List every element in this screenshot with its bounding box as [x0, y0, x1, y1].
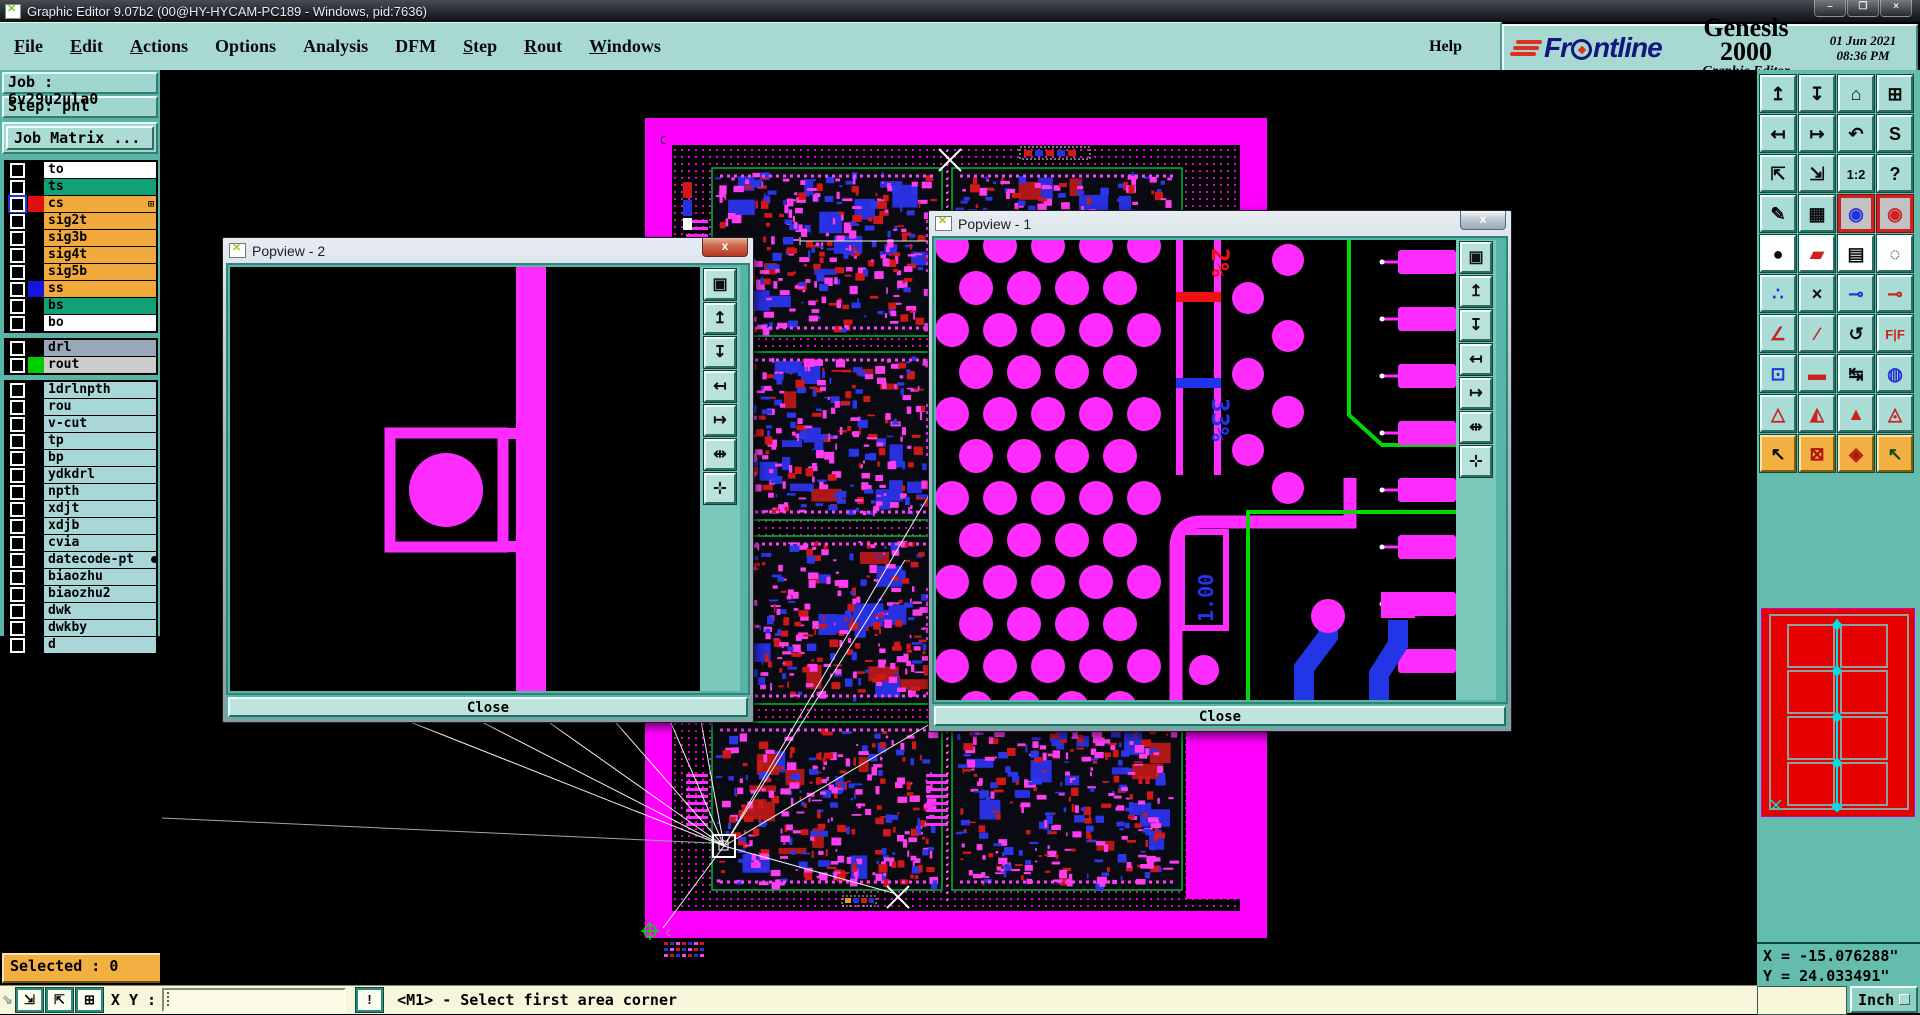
layer-color-swatch[interactable]: [28, 247, 44, 263]
layer-row-drl[interactable]: drl: [6, 340, 156, 356]
layer-checkbox-ss[interactable]: [10, 282, 25, 297]
layer-checkbox-sig5b[interactable]: [10, 265, 25, 280]
layer-checkbox-dwk[interactable]: [10, 604, 25, 619]
layer-label[interactable]: bo: [44, 315, 156, 331]
zoom-out-button[interactable]: ⇱: [1760, 155, 1796, 192]
xy-input[interactable]: [162, 988, 346, 1012]
layer-color-swatch[interactable]: [28, 467, 44, 483]
job-label: Job : 6v29u2ula0: [2, 72, 158, 94]
layer-row-biaozhu[interactable]: biaozhu: [6, 569, 156, 585]
layer-checkbox-rou[interactable]: [10, 400, 25, 415]
layer-row-sig4t[interactable]: sig4t: [6, 247, 156, 263]
alert-button[interactable]: !: [356, 988, 383, 1012]
layer-checkbox-xdjt[interactable]: [10, 502, 25, 517]
layer-row-ts[interactable]: ts: [6, 179, 156, 195]
layer-checkbox-bs[interactable]: [10, 299, 25, 314]
copy-filled-button[interactable]: ⊸: [1877, 275, 1913, 312]
layer-checkbox-ts[interactable]: [10, 180, 25, 195]
setup-tools-button[interactable]: ✎: [1760, 195, 1796, 232]
layer-color-swatch[interactable]: [28, 179, 44, 195]
coord-y: Y = 24.033491": [1763, 966, 1920, 986]
popview2-canvas: [230, 267, 700, 691]
layer-checkbox-sig4t[interactable]: [10, 248, 25, 263]
layer-color-swatch[interactable]: [28, 382, 44, 398]
display-profile-2-button[interactable]: ◉: [1877, 195, 1913, 232]
cursor-coordinates: X = -15.076288" Y = 24.033491": [1757, 942, 1920, 990]
pan-right-button[interactable]: ↦: [1799, 115, 1835, 152]
layer-checkbox-xdjb[interactable]: [10, 519, 25, 534]
popview2-close-x-button[interactable]: x: [702, 238, 748, 257]
logo-stripes-icon: [1510, 40, 1542, 56]
zoom-fit-icon[interactable]: ⇹: [704, 439, 736, 470]
popout-window-icon[interactable]: ▣: [1460, 242, 1492, 273]
layer-checkbox-dwkby[interactable]: [10, 621, 25, 636]
layer-label[interactable]: sig5b: [44, 264, 156, 280]
menu-items: FileEditActionsOptionsAnalysisDFMStepRou…: [14, 36, 661, 57]
pan-down-icon[interactable]: ↧: [704, 337, 736, 368]
layer-row-ydkdrl[interactable]: ydkdrl: [6, 467, 156, 483]
layer-color-swatch[interactable]: [28, 637, 44, 653]
menu-item-file[interactable]: File: [14, 36, 43, 57]
text-caret: [167, 992, 169, 1006]
layer-checkbox-biaozhu[interactable]: [10, 570, 25, 585]
brand-name: Frntline: [1544, 32, 1662, 64]
layer-color-swatch[interactable]: [28, 196, 44, 212]
popview2-window: Popview - 2 x ▣↥↧↤↦⇹⊹ Close: [222, 237, 754, 723]
layer-color-swatch[interactable]: [28, 620, 44, 636]
popview2-title: Popview - 2: [252, 243, 325, 259]
status-bar: ⇘ ⇲⇱⊞ X Y : ! <M1> - Select first area c…: [0, 985, 1757, 1014]
net-points-button[interactable]: ∴: [1760, 275, 1796, 312]
layer-list: totscs⊞sig2tsig3bsig4tsig5bssbsbodrlrout…: [4, 160, 158, 655]
cursor-net-button[interactable]: ↖: [1877, 435, 1913, 472]
pan-left-button[interactable]: ↤: [1760, 115, 1796, 152]
layer-label[interactable]: xdjt: [44, 501, 156, 517]
layer-checkbox-bo[interactable]: [10, 316, 25, 331]
truncation-dot: [151, 556, 156, 563]
layer-row-d[interactable]: d: [6, 637, 156, 653]
layer-color-swatch[interactable]: [28, 603, 44, 619]
layer-color-swatch[interactable]: [28, 315, 44, 331]
layer-label[interactable]: bs: [44, 298, 156, 314]
layer-label[interactable]: sig3b: [44, 230, 156, 246]
menu-item-edit[interactable]: Edit: [70, 36, 103, 57]
layer-color-swatch[interactable]: [28, 298, 44, 314]
layer-color-swatch[interactable]: [28, 484, 44, 500]
layer-color-swatch[interactable]: [28, 552, 44, 568]
zoom-sequence-button[interactable]: S: [1877, 115, 1913, 152]
layer-color-swatch[interactable]: [28, 357, 44, 373]
datetime: 01 Jun 2021 08:36 PM: [1810, 33, 1916, 63]
menu-item-dfm[interactable]: DFM: [395, 36, 436, 57]
menu-item-rout[interactable]: Rout: [524, 36, 562, 57]
menu-bar: FileEditActionsOptionsAnalysisDFMStepRou…: [0, 22, 1502, 71]
layer-row-rout[interactable]: rout: [6, 357, 156, 373]
layer-label[interactable]: sig4t: [44, 247, 156, 263]
zoom-center-icon[interactable]: ⊹: [1460, 446, 1492, 477]
xy-label: X Y :: [111, 991, 156, 1009]
pan-left-icon[interactable]: ↤: [704, 371, 736, 402]
layer-row-1drlnpth[interactable]: 1drlnpth: [6, 382, 156, 398]
popview2-toolbar: ▣↥↧↤↦⇹⊹: [700, 267, 740, 691]
coord-x: X = -15.076288": [1763, 946, 1920, 966]
brand-panel: Frntline Genesis 2000 Graphic Editor 01 …: [1502, 24, 1918, 72]
layer-label[interactable]: dwk: [44, 603, 156, 619]
layer-checkbox-drl[interactable]: [10, 341, 25, 356]
layer-label[interactable]: ts: [44, 179, 156, 195]
layer-checkbox-bp[interactable]: [10, 451, 25, 466]
layer-color-swatch[interactable]: [28, 340, 44, 356]
layer-label[interactable]: 1drlnpth: [44, 382, 156, 398]
pan-left-icon[interactable]: ↤: [1460, 344, 1492, 375]
layer-row-cvia[interactable]: cvia: [6, 535, 156, 551]
layer-row-npth[interactable]: npth: [6, 484, 156, 500]
pan-up-icon[interactable]: ↥: [1460, 276, 1492, 307]
toolbar-grid: ↥↧⌂⊞↤↦↶S⇱⇲1:2?✎▦◉◉●▰▤◌∴×⊸⊸∠∕↺F|F⊡▬↹◍△◭▲◬…: [1760, 75, 1916, 475]
layer-row-dwkby[interactable]: dwkby: [6, 620, 156, 636]
layer-checkbox-to[interactable]: [10, 163, 25, 178]
layer-label[interactable]: xdjb: [44, 518, 156, 534]
layer-checkbox-1drlnpth[interactable]: [10, 383, 25, 398]
pan-down-icon[interactable]: ↧: [1460, 310, 1492, 341]
units-dropdown[interactable]: Inch: [1850, 986, 1918, 1013]
layer-row-xdjb[interactable]: xdjb: [6, 518, 156, 534]
layer-checkbox-ydkdrl[interactable]: [10, 468, 25, 483]
layer-color-swatch[interactable]: [28, 569, 44, 585]
triangle-double-button[interactable]: ◭: [1799, 395, 1835, 432]
layer-label[interactable]: d: [44, 637, 156, 653]
layer-color-swatch[interactable]: [28, 433, 44, 449]
layer-color-swatch[interactable]: [28, 213, 44, 229]
menu-item-analysis[interactable]: Analysis: [303, 36, 368, 57]
datecode-legend: [664, 942, 704, 957]
restore-button[interactable]: ❐: [1847, 0, 1879, 17]
layer-row-dwk[interactable]: dwk: [6, 603, 156, 619]
layer-grid-icon: ⊞: [148, 197, 154, 212]
app-icon: [5, 4, 21, 19]
layer-checkbox-biaozhu2[interactable]: [10, 587, 25, 602]
date-text: 01 Jun 2021: [1810, 33, 1916, 48]
dropdown-indicator-icon: [1899, 994, 1910, 1005]
layer-label[interactable]: ydkdrl: [44, 467, 156, 483]
layer-row-bp[interactable]: bp: [6, 450, 156, 466]
layer-color-swatch[interactable]: [28, 162, 44, 178]
window-title: Graphic Editor 9.07b2 (00@HY-HYCAM-PC189…: [27, 4, 427, 19]
menu-help[interactable]: Help: [1429, 38, 1462, 56]
layer-label[interactable]: rou: [44, 399, 156, 415]
layer-checkbox-npth[interactable]: [10, 485, 25, 500]
layer-color-swatch[interactable]: [28, 535, 44, 551]
mirror-button[interactable]: F|F: [1877, 315, 1913, 352]
cursor-polygon-button[interactable]: ◈: [1838, 435, 1874, 472]
percent-label-top: 2%: [1206, 248, 1234, 277]
layer-label[interactable]: dwkby: [44, 620, 156, 636]
merge-pads-button[interactable]: ◍: [1877, 355, 1913, 392]
leader-line-grey: [162, 818, 712, 843]
copy-pad-button[interactable]: ⊡: [1760, 355, 1796, 392]
menu-item-step[interactable]: Step: [463, 36, 497, 57]
pan-up-window-button[interactable]: ↥: [1760, 75, 1796, 112]
pan-up-icon[interactable]: ↥: [704, 303, 736, 334]
popview-window-icon: [229, 243, 246, 258]
popview1-toolbar: ▣↥↧↤↦⇹⊹: [1456, 240, 1496, 700]
layer-row-biaozhu2[interactable]: biaozhu2: [6, 586, 156, 602]
product-title: Genesis 2000: [1682, 16, 1810, 64]
layer-label[interactable]: bp: [44, 450, 156, 466]
zoom-fit-icon[interactable]: ⇹: [1460, 412, 1492, 443]
stretch-line-button[interactable]: ▬: [1799, 355, 1835, 392]
layer-label[interactable]: ss: [44, 281, 156, 297]
measure-ruler-button[interactable]: ▤: [1838, 235, 1874, 272]
layer-color-swatch[interactable]: [28, 230, 44, 246]
triangle-outline-button[interactable]: △: [1760, 395, 1796, 432]
cursor-area-button[interactable]: ⊠: [1799, 435, 1835, 472]
layer-row-sig3b[interactable]: sig3b: [6, 230, 156, 246]
layer-row-tp[interactable]: tp: [6, 433, 156, 449]
layer-color-swatch[interactable]: [28, 264, 44, 280]
popview1-window: Popview - 1 x 2% 33% 1.00: [928, 210, 1512, 732]
layer-label[interactable]: cvia: [44, 535, 156, 551]
zoom-window-xy-button[interactable]: ⊞: [1877, 75, 1913, 112]
measure-slope-button[interactable]: ∕: [1799, 315, 1835, 352]
status-message: <M1> - Select first area corner: [397, 991, 677, 1009]
zoom-previous-button[interactable]: ↶: [1838, 115, 1874, 152]
layer-color-swatch[interactable]: [28, 501, 44, 517]
layer-checkbox-cvia[interactable]: [10, 536, 25, 551]
zoom-1-2-button[interactable]: 1:2: [1838, 155, 1874, 192]
menu-item-actions[interactable]: Actions: [130, 36, 188, 57]
layer-row-v-cut[interactable]: v-cut: [6, 416, 156, 432]
layer-label[interactable]: to: [44, 162, 156, 178]
menu-item-windows[interactable]: Windows: [589, 36, 661, 57]
select-pad-button[interactable]: ◌: [1877, 235, 1913, 272]
popview1-canvas: 2% 33% 1.00: [936, 240, 1456, 700]
popview1-close-button[interactable]: Close: [934, 706, 1506, 726]
layer-row-xdjt[interactable]: xdjt: [6, 501, 156, 517]
job-matrix-button[interactable]: Job Matrix ...: [6, 126, 154, 150]
layer-label[interactable]: sig2t: [44, 213, 156, 229]
delete-button[interactable]: ×: [1799, 275, 1835, 312]
close-button[interactable]: ×: [1880, 0, 1912, 17]
layer-checkbox-v-cut[interactable]: [10, 417, 25, 432]
popview-window-icon: [935, 216, 952, 231]
note-box: [1757, 986, 1847, 1015]
resize-grip-icon: ⇘: [2, 992, 13, 1008]
copy-open-button[interactable]: ⊸: [1838, 275, 1874, 312]
layer-color-swatch[interactable]: [28, 416, 44, 432]
layer-color-swatch[interactable]: [28, 518, 44, 534]
pan-right-icon[interactable]: ↦: [704, 405, 736, 436]
minimize-button[interactable]: –: [1814, 0, 1846, 17]
measure-diagonal-icon[interactable]: ⇱: [46, 988, 73, 1012]
layer-label[interactable]: rout: [44, 357, 156, 373]
window-controls: –❐×: [1813, 0, 1912, 17]
layer-row-ss[interactable]: ss: [6, 281, 156, 297]
layer-checkbox-datecode-pt[interactable]: [10, 553, 25, 568]
grid-toggle-button[interactable]: ▦: [1799, 195, 1835, 232]
panel-overview-thumbnail[interactable]: [1761, 608, 1915, 817]
menu-item-options[interactable]: Options: [215, 36, 276, 57]
zoom-home-button[interactable]: ⌂: [1838, 75, 1874, 112]
tile-windows-icon[interactable]: ⊞: [76, 988, 103, 1012]
layer-row-sig5b[interactable]: sig5b: [6, 264, 156, 280]
pan-right-icon[interactable]: ↦: [1460, 378, 1492, 409]
dimension-button[interactable]: ↹: [1838, 355, 1874, 392]
edit-shapes-button[interactable]: ▰: [1799, 235, 1835, 272]
layer-row-to[interactable]: to: [6, 162, 156, 178]
triangle-wide-button[interactable]: ◬: [1877, 395, 1913, 432]
layer-color-swatch[interactable]: [28, 281, 44, 297]
panel-corner-letter-top: C: [660, 134, 667, 147]
sidebar: Job : 6v29u2ula0 Step: pnl Job Matrix ..…: [0, 70, 160, 636]
zoom-in-button[interactable]: ⇲: [1799, 155, 1835, 192]
layer-color-swatch[interactable]: [28, 450, 44, 466]
triangle-filled-button[interactable]: ▲: [1838, 395, 1874, 432]
layer-row-rou[interactable]: rou: [6, 399, 156, 415]
layer-label[interactable]: biaozhu: [44, 569, 156, 585]
popview2-title-bar[interactable]: Popview - 2 x: [226, 238, 750, 263]
layer-label[interactable]: npth: [44, 484, 156, 500]
layer-checkbox-d[interactable]: [10, 638, 25, 653]
time-text: 08:36 PM: [1810, 48, 1916, 63]
layer-label[interactable]: tp: [44, 433, 156, 449]
layer-row-bo[interactable]: bo: [6, 315, 156, 331]
layer-color-swatch[interactable]: [28, 586, 44, 602]
layer-row-cs[interactable]: cs⊞: [6, 196, 156, 212]
step-label: Step: pnl: [2, 96, 158, 118]
right-toolbar-panel: ↥↧⌂⊞↤↦↶S⇱⇲1:2?✎▦◉◉●▰▤◌∴×⊸⊸∠∕↺F|F⊡▬↹◍△◭▲◬…: [1757, 70, 1920, 1013]
layer-color-swatch[interactable]: [28, 399, 44, 415]
display-profile-1-button[interactable]: ◉: [1838, 195, 1874, 232]
popout-window-icon[interactable]: ▣: [704, 269, 736, 300]
layer-label[interactable]: datecode-pt: [44, 552, 156, 568]
value-label: 1.00: [1194, 574, 1218, 622]
panel-corner-letter-bottom: C: [666, 929, 671, 939]
layer-label[interactable]: biaozhu2: [44, 586, 156, 602]
popview2-close-button[interactable]: Close: [228, 697, 748, 717]
layer-label[interactable]: drl: [44, 340, 156, 356]
percent-label-mid: 33%: [1206, 398, 1234, 442]
layer-checkbox-sig2t[interactable]: [10, 214, 25, 229]
zoom-center-icon[interactable]: ⊹: [704, 473, 736, 504]
layer-label[interactable]: v-cut: [44, 416, 156, 432]
frontline-logo: Frntline: [1510, 32, 1682, 64]
layer-checkbox-rout[interactable]: [10, 358, 25, 373]
layer-row-datecode-pt[interactable]: datecode-pt: [6, 552, 156, 568]
select-feature-button[interactable]: ●: [1760, 235, 1796, 272]
layer-label[interactable]: cs⊞: [44, 196, 156, 212]
layer-checkbox-sig3b[interactable]: [10, 231, 25, 246]
layer-row-sig2t[interactable]: sig2t: [6, 213, 156, 229]
rotate-button[interactable]: ↺: [1838, 315, 1874, 352]
cursor-select-button[interactable]: ↖: [1760, 435, 1796, 472]
layer-row-bs[interactable]: bs: [6, 298, 156, 314]
layer-checkbox-cs[interactable]: [10, 197, 25, 212]
window-title-bar: Graphic Editor 9.07b2 (00@HY-HYCAM-PC189…: [0, 0, 1920, 22]
popview1-close-x-button[interactable]: x: [1460, 211, 1506, 230]
resize-corner-icon[interactable]: ⇲: [16, 988, 43, 1012]
layer-checkbox-tp[interactable]: [10, 434, 25, 449]
popview1-title: Popview - 1: [958, 216, 1031, 232]
measure-angle-button[interactable]: ∠: [1760, 315, 1796, 352]
pan-down-window-button[interactable]: ↧: [1799, 75, 1835, 112]
popview1-title-bar[interactable]: Popview - 1 x: [932, 211, 1508, 236]
query-button[interactable]: ?: [1877, 155, 1913, 192]
